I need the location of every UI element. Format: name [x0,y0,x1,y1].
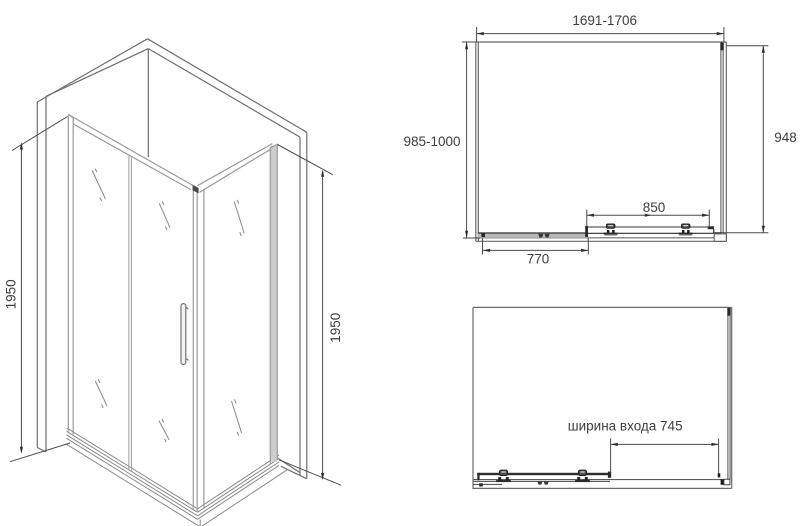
svg-text:1950: 1950 [4,279,19,309]
svg-text:850: 850 [643,200,666,215]
svg-text:ширина входа 745: ширина входа 745 [568,418,683,433]
svg-text:948: 948 [774,130,797,145]
svg-text:1950: 1950 [328,313,343,343]
svg-text:770: 770 [527,252,550,267]
svg-text:985-1000: 985-1000 [403,134,460,149]
svg-text:1691-1706: 1691-1706 [572,13,637,28]
